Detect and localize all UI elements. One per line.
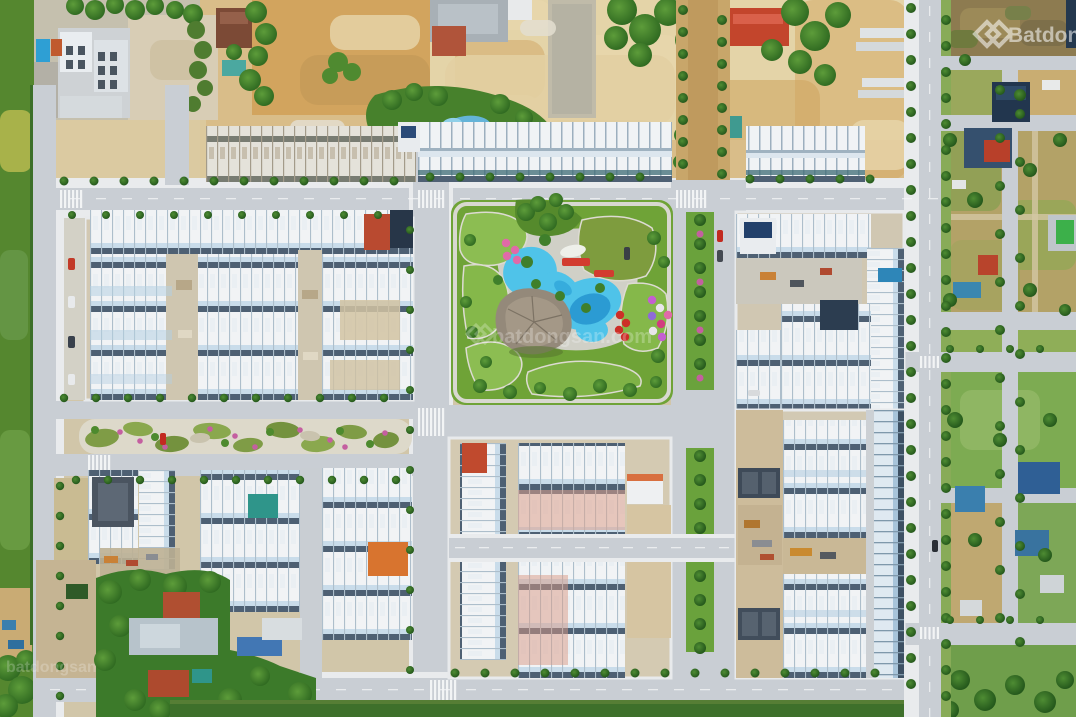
svg-text:batdongsan: batdongsan xyxy=(6,659,97,676)
svg-text:Batdongsa: Batdongsa xyxy=(1008,24,1076,47)
svg-text:batdongsan.com: batdongsan.com xyxy=(492,326,652,348)
